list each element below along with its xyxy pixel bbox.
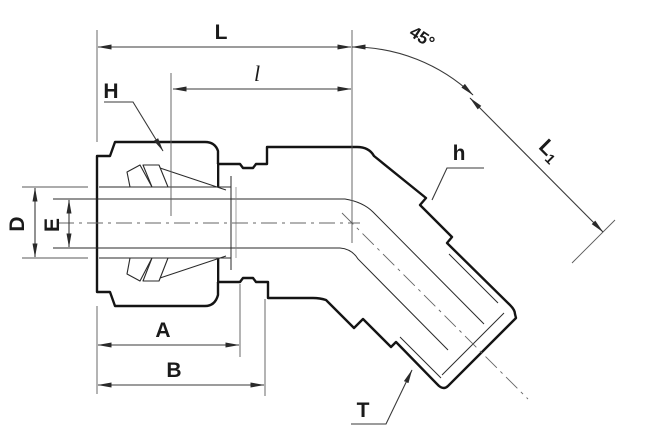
ext-l1-end bbox=[572, 220, 615, 263]
dim-angle-arc bbox=[352, 47, 473, 95]
label-dim-b: B bbox=[166, 359, 181, 382]
elbow-fitting-drawing: L l 45° H h L1 D E A B T bbox=[0, 0, 656, 438]
centerline-angled bbox=[342, 213, 528, 399]
leader-H bbox=[104, 102, 163, 151]
label-thread: T bbox=[357, 399, 370, 422]
thread-crest-lower bbox=[400, 337, 441, 378]
label-tube-od: D bbox=[6, 216, 29, 231]
label-body-hex: h bbox=[453, 142, 466, 165]
dim-L1-line bbox=[470, 98, 603, 232]
label-leg-length: L1 bbox=[533, 135, 565, 167]
label-nut-hex: H bbox=[103, 80, 118, 103]
label-bend-angle: 45° bbox=[406, 22, 438, 52]
technical-drawing-page: L l 45° H h L1 D E A B T bbox=[0, 0, 656, 438]
label-dim-a: A bbox=[155, 319, 170, 342]
leader-h bbox=[432, 168, 484, 200]
label-overall-length: L bbox=[215, 21, 228, 44]
label-insertion-length: l bbox=[254, 61, 260, 86]
label-bore-id: E bbox=[41, 218, 64, 232]
